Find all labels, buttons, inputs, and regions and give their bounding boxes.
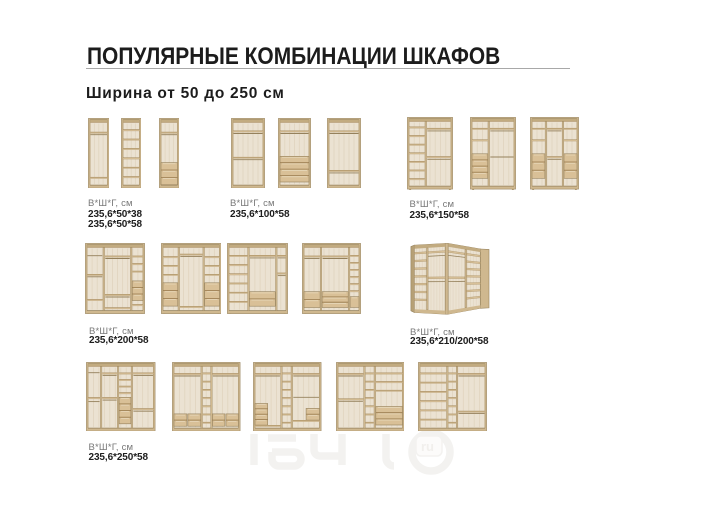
svg-text:ru: ru: [421, 439, 434, 454]
